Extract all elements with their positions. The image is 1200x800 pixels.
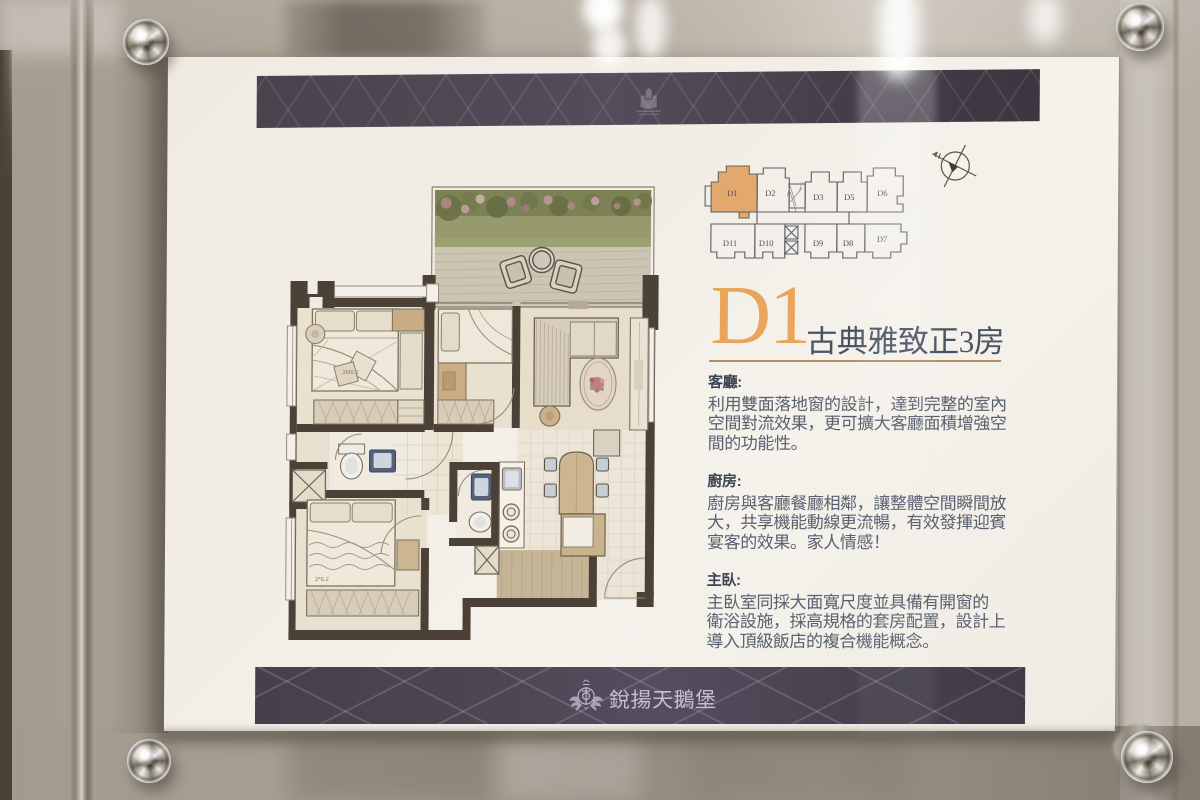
svg-text:3M6.2: 3M6.2: [342, 370, 359, 376]
svg-text:D11: D11: [723, 238, 737, 248]
svg-text:D8: D8: [843, 238, 853, 248]
svg-text:D9: D9: [813, 238, 823, 248]
svg-text:D3: D3: [813, 192, 823, 202]
svg-text:3*6.2: 3*6.2: [315, 577, 330, 583]
svg-text:D5: D5: [844, 192, 854, 202]
svg-text:D2: D2: [765, 188, 775, 198]
svg-text:D10: D10: [759, 238, 774, 248]
svg-text:D1: D1: [727, 188, 737, 198]
